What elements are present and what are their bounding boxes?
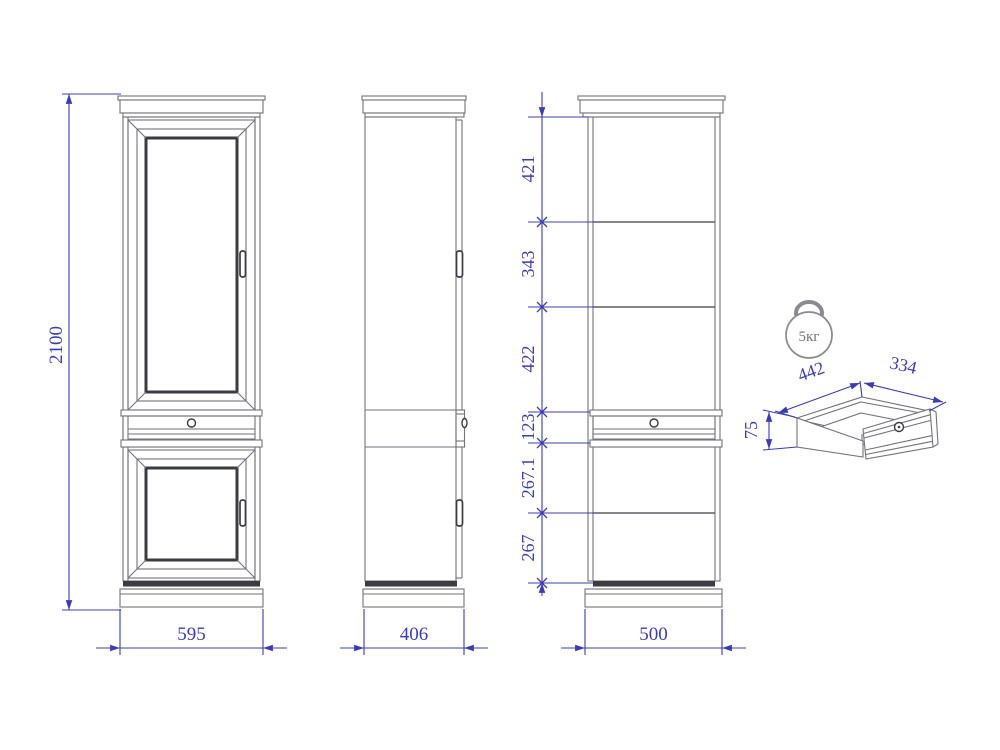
side-cornice-band <box>363 100 465 113</box>
cabinet-technical-drawing: 2100 595 406 500 <box>0 0 1000 750</box>
side-drawer-knob <box>462 419 467 428</box>
dimension-overall-height: 2100 <box>46 94 121 610</box>
side-base-band <box>365 581 457 587</box>
front-drawer <box>121 410 262 447</box>
dim-section-width-label: 500 <box>639 624 668 645</box>
upper-door-handle <box>240 251 246 277</box>
front-base-band <box>123 581 260 587</box>
dim-segment-5: 267.1 <box>518 458 538 499</box>
front-upper-door <box>128 120 255 410</box>
dimension-section-width: 500 <box>561 609 746 655</box>
side-cornice-top <box>362 96 466 100</box>
side-plinth <box>363 589 464 607</box>
dim-front-width-label: 595 <box>177 624 206 645</box>
dim-side-depth-label: 406 <box>400 624 429 645</box>
dim-drawer-height-label: 75 <box>741 421 761 439</box>
dimension-front-width: 595 <box>96 609 287 655</box>
section-cornice-band <box>580 100 723 113</box>
dimension-side-depth: 406 <box>340 609 488 655</box>
capacity-label: 5кг <box>799 329 820 345</box>
technical-drawing-page: 2100 595 406 500 <box>0 0 1000 750</box>
kettlebell-weight-icon: 5кг <box>786 302 832 358</box>
front-plinth <box>120 589 263 607</box>
section-drawer-knob <box>650 419 658 427</box>
lower-door-handle <box>240 500 246 526</box>
section-cornice-top <box>578 96 725 100</box>
dim-segment-6: 267 <box>518 535 538 562</box>
side-carcass <box>365 117 456 581</box>
front-cornice-step <box>123 113 260 117</box>
section-view <box>578 96 725 607</box>
dim-drawer-depth-label: 442 <box>795 357 827 385</box>
side-drawer-profile <box>365 410 467 447</box>
section-cornice-step <box>583 113 720 117</box>
front-lower-door <box>128 450 255 578</box>
front-cornice-band <box>120 100 263 113</box>
dim-segment-4: 123 <box>518 414 538 441</box>
side-upper-handle <box>457 251 463 277</box>
front-view <box>118 96 265 607</box>
section-base-band <box>593 581 715 587</box>
dimension-internal-chain: 421 343 422 123 267.1 267 <box>518 92 593 596</box>
dim-segment-3: 422 <box>518 346 538 373</box>
section-plinth <box>585 589 722 607</box>
dim-segment-2: 343 <box>518 251 538 278</box>
dim-height-label: 2100 <box>46 326 67 364</box>
side-lower-handle <box>457 500 463 526</box>
dim-segment-1: 421 <box>518 156 538 183</box>
side-cornice-step <box>365 113 464 117</box>
section-drawer <box>590 410 722 447</box>
dimension-drawer-height: 75 <box>741 410 797 450</box>
side-view <box>362 96 467 607</box>
section-carcass <box>588 117 720 581</box>
drawer-detail: 5кг 442 <box>741 302 946 459</box>
drawer-knob <box>188 419 196 427</box>
front-cornice-top <box>118 96 265 100</box>
dim-drawer-width-label: 334 <box>888 352 919 378</box>
drawer-isometric <box>797 397 938 459</box>
